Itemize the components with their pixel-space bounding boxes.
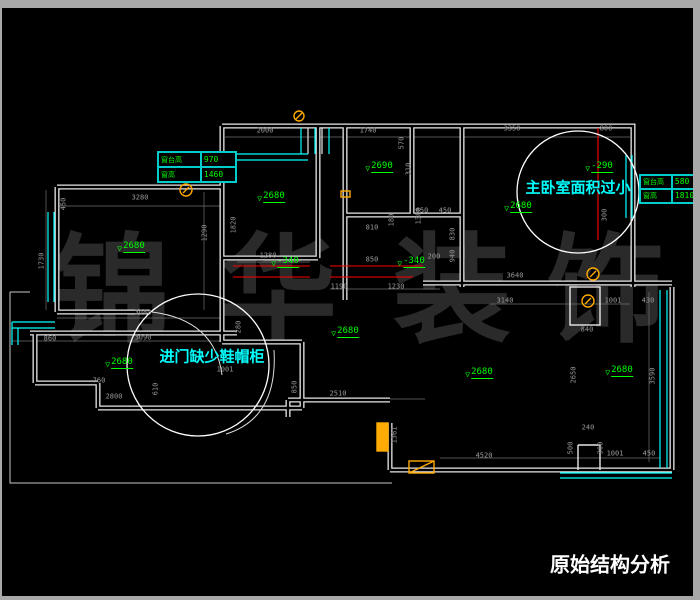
dim-label: 300 — [602, 209, 609, 222]
window-lines — [12, 154, 672, 478]
level-triangle-icon: ▽ — [271, 259, 276, 268]
callout-text: 主卧室面积过小 — [525, 177, 630, 198]
dim-label: 810 — [366, 225, 379, 232]
dim-label: 3280 — [132, 195, 149, 202]
level-marker: ▽2680 — [117, 241, 145, 251]
cad-viewport[interactable]: 锦华装饰 — [0, 0, 700, 600]
dim-label: 180 — [389, 214, 396, 227]
hatch-lines — [301, 128, 329, 154]
dim-label: 450 — [643, 451, 656, 458]
info-table-label: 窗高 — [158, 167, 201, 182]
dim-label: 3350 — [504, 126, 521, 133]
window-chrome-top — [0, 0, 700, 8]
dim-label: 830 — [450, 228, 457, 241]
dim-label: 2510 — [330, 391, 347, 398]
outer-boundary-lines — [10, 292, 392, 483]
window-info-table: 窗台高970窗高1460 — [157, 151, 237, 183]
floorplan-drawing — [0, 0, 700, 600]
level-marker: ▽-340 — [397, 256, 425, 266]
level-triangle-icon: ▽ — [365, 164, 370, 173]
dim-label: 610 — [153, 383, 160, 396]
level-marker: ▽2680 — [504, 201, 532, 211]
dim-label: 650 — [416, 208, 429, 215]
dim-label: 3140 — [497, 298, 514, 305]
level-triangle-icon: ▽ — [331, 329, 336, 338]
info-table-label: 窗台高 — [640, 175, 672, 189]
level-triangle-icon: ▽ — [105, 360, 110, 369]
drawing-title: 原始结构分析 — [550, 549, 670, 578]
callout-text: 进门缺少鞋帽柜 — [159, 346, 264, 367]
dim-label: 4520 — [476, 453, 493, 460]
dim-label: 1190 — [331, 284, 348, 291]
dim-label: 800 — [600, 126, 613, 133]
dim-label: 500 — [568, 442, 575, 455]
dim-label: 1001 — [605, 298, 622, 305]
dim-label: 1820 — [231, 217, 238, 234]
level-marker: ▽2680 — [257, 191, 285, 201]
level-triangle-icon: ▽ — [504, 204, 509, 213]
level-triangle-icon: ▽ — [605, 368, 610, 377]
dim-label: 240 — [582, 425, 595, 432]
window-chrome-right — [693, 0, 700, 600]
dim-label: 940 — [450, 250, 457, 263]
dim-label: 3590 — [650, 368, 657, 385]
level-marker: ▽2690 — [365, 161, 393, 171]
dim-label: 1730 — [39, 253, 46, 270]
dim-label: 1001 — [607, 451, 624, 458]
door-panel-icon — [377, 423, 388, 451]
dim-label: 310 — [406, 163, 413, 176]
level-marker: ▽-340 — [271, 256, 299, 266]
dim-label: 1290 — [202, 225, 209, 242]
info-table-label: 窗台高 — [158, 152, 201, 167]
level-marker: ▽2680 — [605, 365, 633, 375]
dim-label: 840 — [581, 327, 594, 334]
level-triangle-icon: ▽ — [465, 370, 470, 379]
level-triangle-icon: ▽ — [585, 164, 590, 173]
dim-label: 300 — [598, 442, 605, 455]
dim-label: 1361 — [392, 427, 399, 444]
level-marker: ▽2680 — [465, 367, 493, 377]
level-marker: ▽2680 — [105, 357, 133, 367]
window-info-table: 窗台高580窗高1810 — [639, 174, 699, 204]
door-arcs — [152, 312, 274, 434]
level-marker: ▽2680 — [331, 326, 359, 336]
dim-label: 1001 — [217, 367, 234, 374]
dim-label: 450 — [61, 198, 68, 211]
dim-label: 3080 — [135, 310, 152, 317]
level-triangle-icon: ▽ — [117, 244, 122, 253]
dim-label: 570 — [399, 137, 406, 150]
dim-label: 3090 — [135, 335, 152, 342]
dim-label: 200 — [428, 254, 441, 261]
dim-label: 860 — [44, 336, 57, 343]
level-triangle-icon: ▽ — [397, 259, 402, 268]
window-chrome-left — [0, 0, 2, 600]
info-table-value: 970 — [201, 152, 236, 167]
level-triangle-icon: ▽ — [257, 194, 262, 203]
drain-symbol-icon — [183, 113, 596, 304]
dim-label: 450 — [439, 208, 452, 215]
dim-label: 3640 — [507, 273, 524, 280]
dim-label: 760 — [93, 378, 106, 385]
dim-label: 2000 — [257, 128, 274, 135]
dim-label: 1740 — [360, 128, 377, 135]
dim-label: 2800 — [106, 394, 123, 401]
level-marker: ▽-290 — [585, 161, 613, 171]
dim-label: 280 — [236, 321, 243, 334]
info-table-value: 1460 — [201, 167, 236, 182]
info-table-label: 窗高 — [640, 189, 672, 203]
dim-label: 2650 — [571, 367, 578, 384]
dim-label: 430 — [642, 298, 655, 305]
demolition-lines — [233, 128, 598, 277]
dim-label: 850 — [366, 257, 379, 264]
dim-label: 850 — [292, 381, 299, 394]
dim-label: 1230 — [388, 284, 405, 291]
window-chrome-bottom — [0, 596, 700, 600]
